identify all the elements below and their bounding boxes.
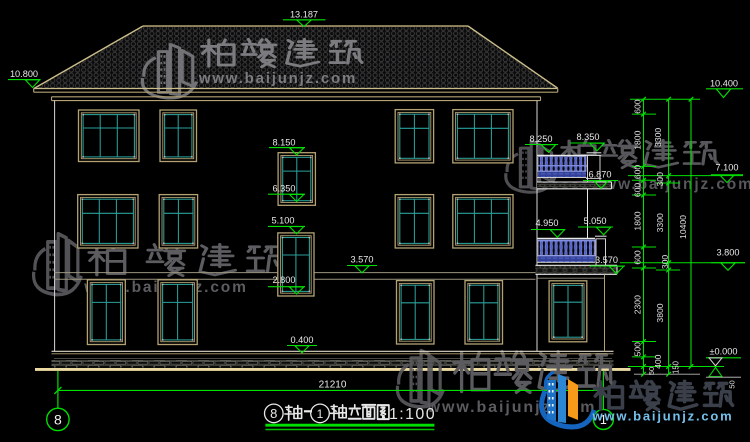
svg-text:4.950: 4.950 [536,218,559,228]
svg-text:21210: 21210 [319,379,347,390]
svg-text:6.870: 6.870 [589,170,612,180]
svg-text:1:100: 1:100 [389,406,436,423]
svg-text:www.baijunjz.com: www.baijunjz.com [198,70,357,87]
svg-text:3.800: 3.800 [717,248,740,258]
svg-text:7.100: 7.100 [716,163,739,173]
svg-text:8: 8 [54,411,62,427]
svg-text:0.400: 0.400 [291,335,314,345]
svg-text:10400: 10400 [678,215,688,239]
svg-text:3300: 3300 [655,213,665,232]
svg-text:www.baijunjz.com: www.baijunjz.com [589,176,750,193]
svg-text:1: 1 [317,407,324,421]
svg-text:8.350: 8.350 [577,132,600,142]
svg-text:600: 600 [633,250,643,265]
svg-text:8.250: 8.250 [530,134,553,144]
svg-text:2300: 2300 [633,295,643,314]
svg-text:8.150: 8.150 [273,138,296,148]
svg-text:3.570: 3.570 [595,255,618,265]
svg-text:10.800: 10.800 [10,69,38,79]
svg-text:3300: 3300 [653,128,663,147]
svg-text:300: 300 [660,255,670,270]
svg-text:600: 600 [633,183,643,198]
svg-text:2.800: 2.800 [273,275,296,285]
svg-text:600: 600 [633,165,643,180]
svg-text:50: 50 [647,367,656,375]
svg-text:13.187: 13.187 [290,10,318,20]
svg-text:3800: 3800 [655,303,665,322]
svg-text:1800: 1800 [633,211,643,230]
svg-text:±0.000: ±0.000 [709,347,737,357]
svg-text:3.570: 3.570 [351,255,374,265]
svg-text:600: 600 [633,99,643,114]
svg-text:1800: 1800 [633,130,643,149]
svg-text:300: 300 [655,172,665,187]
svg-text:400: 400 [653,354,663,369]
svg-text:500: 500 [633,342,643,357]
svg-text:www.baijunjz.com: www.baijunjz.com [592,409,734,424]
svg-text:5.050: 5.050 [584,216,607,226]
svg-text:10.400: 10.400 [710,79,738,89]
svg-text:6.350: 6.350 [273,184,296,194]
svg-text:5.100: 5.100 [272,216,295,226]
svg-text:50: 50 [728,380,737,388]
svg-text:150: 150 [672,360,681,374]
svg-text:8: 8 [270,406,277,421]
